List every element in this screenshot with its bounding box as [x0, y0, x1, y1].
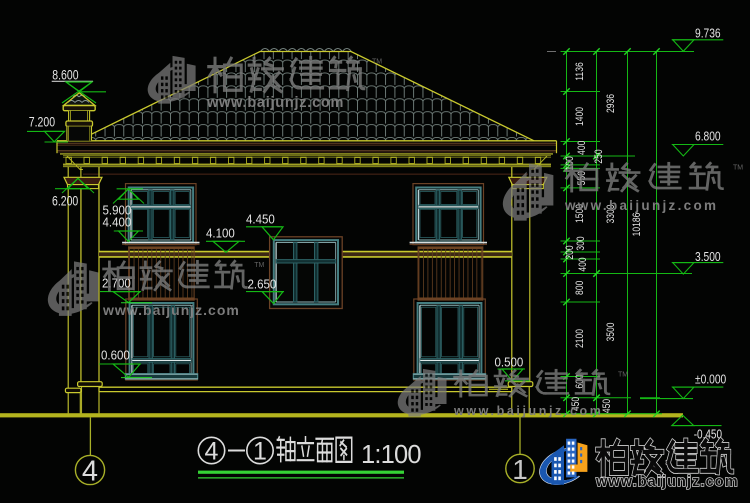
svg-text:300: 300	[575, 236, 587, 251]
svg-text:2100: 2100	[574, 329, 586, 349]
svg-text:2936: 2936	[605, 94, 617, 114]
svg-text:www.baijunjz.com: www.baijunjz.com	[206, 95, 344, 111]
svg-text:1400: 1400	[574, 107, 586, 127]
svg-text:4: 4	[205, 438, 219, 466]
svg-text:TM: TM	[733, 164, 743, 171]
svg-text:TM: TM	[618, 372, 628, 379]
svg-text:10186: 10186	[631, 212, 643, 236]
svg-text:0.600: 0.600	[101, 348, 130, 363]
svg-text:1: 1	[512, 454, 528, 485]
svg-text:TM: TM	[372, 59, 382, 66]
svg-text:1: 1	[253, 438, 267, 466]
svg-text:www.baijunjz.com: www.baijunjz.com	[453, 404, 603, 418]
svg-text:400: 400	[577, 257, 589, 272]
svg-text:400: 400	[576, 140, 588, 155]
svg-text:8.600: 8.600	[52, 67, 78, 83]
svg-text:250: 250	[593, 149, 605, 164]
svg-text:0.500: 0.500	[495, 355, 524, 370]
svg-text:6.200: 6.200	[52, 193, 78, 209]
svg-text:1:100: 1:100	[361, 441, 421, 469]
svg-text:4.400: 4.400	[103, 215, 132, 230]
svg-text:7.200: 7.200	[29, 114, 55, 130]
svg-text:800: 800	[574, 280, 586, 295]
svg-text:100: 100	[564, 156, 576, 171]
svg-text:www.baijunjz.com: www.baijunjz.com	[102, 302, 240, 318]
svg-text:6.800: 6.800	[695, 131, 721, 144]
svg-text:4: 4	[82, 456, 98, 488]
svg-text:www.baijunjz.com: www.baijunjz.com	[564, 198, 718, 213]
svg-text:4.450: 4.450	[246, 212, 275, 227]
svg-text:4.100: 4.100	[206, 226, 235, 241]
svg-text:3500: 3500	[605, 322, 617, 342]
svg-text:1136: 1136	[574, 62, 586, 81]
svg-text:9.736: 9.736	[695, 28, 721, 41]
svg-text:www.baijunjz.com: www.baijunjz.com	[595, 474, 739, 490]
svg-text:TM: TM	[254, 262, 264, 269]
svg-text:200: 200	[564, 245, 576, 260]
svg-text:±0.000: ±0.000	[695, 374, 726, 387]
svg-text:2.650: 2.650	[248, 277, 277, 292]
